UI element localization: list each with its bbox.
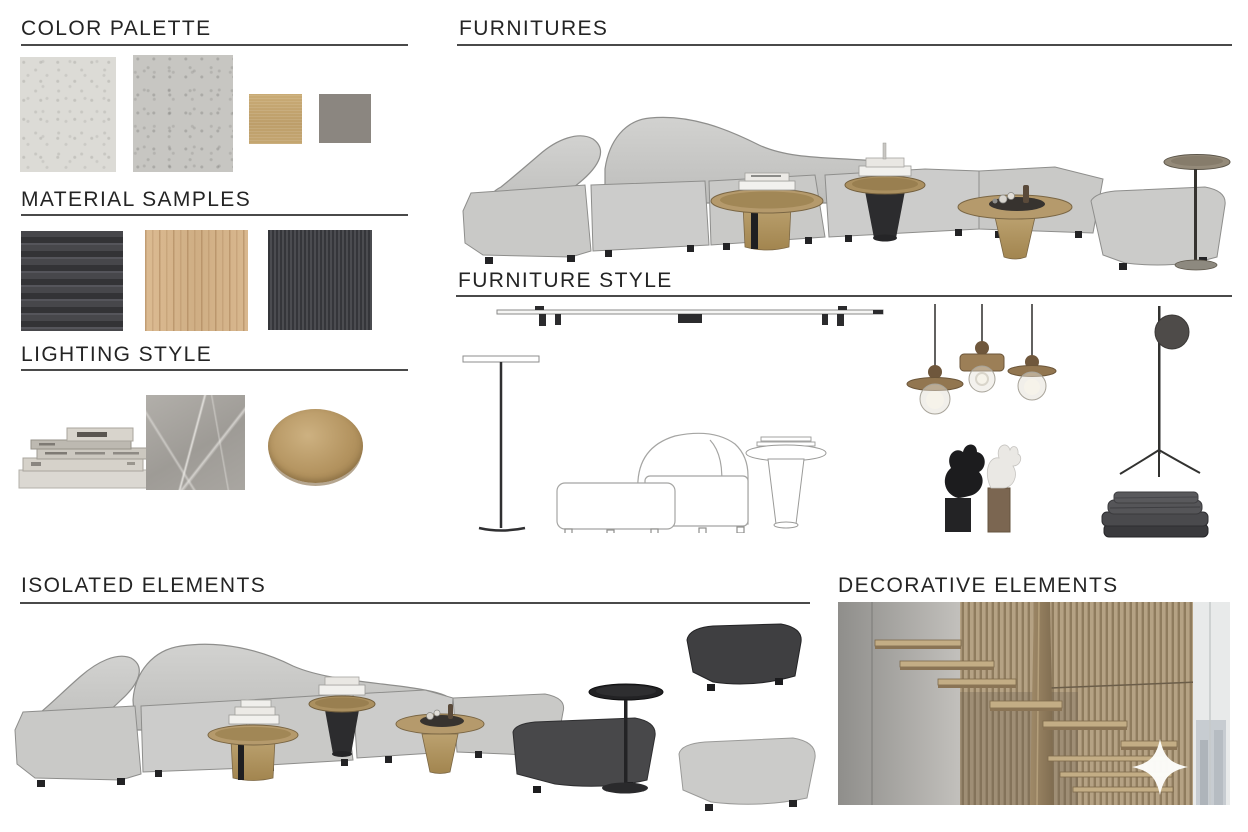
- ribbed-fabric-swatch: [268, 230, 372, 330]
- dark-ottoman: [513, 718, 655, 786]
- mood-board: COLOR PALETTE MATERIAL SAMPLES LIGHTING …: [0, 0, 1248, 832]
- lighting-style-title: LIGHTING STYLE: [21, 343, 212, 367]
- isolated-elements-rule: [20, 602, 810, 604]
- gunmetal-swatch: [319, 94, 371, 143]
- oak-veneer-swatch: [145, 230, 248, 331]
- light-plaster-swatch: [20, 57, 116, 172]
- black-ottoman: [687, 624, 801, 684]
- lighting-style-rule: [21, 369, 408, 371]
- disc-floor-lamp: [1112, 300, 1212, 480]
- abstract-sculptures: [935, 438, 1030, 533]
- material-samples-rule: [21, 214, 408, 216]
- staircase-photo: [838, 602, 1230, 805]
- gray-plaster-swatch: [133, 55, 233, 172]
- floor-lamp-sketch: [463, 356, 539, 531]
- folded-blankets: [1100, 488, 1212, 540]
- color-palette-title: COLOR PALETTE: [21, 17, 212, 41]
- brass-disc: [268, 409, 363, 483]
- modular-chair-sketch: [557, 433, 748, 533]
- book-stack: [15, 422, 155, 492]
- track-light: [495, 303, 885, 329]
- furniture-style-rule: [456, 295, 1232, 297]
- marble-swatch: [146, 395, 245, 490]
- material-samples-title: MATERIAL SAMPLES: [21, 188, 251, 212]
- furnitures-rule: [457, 44, 1232, 46]
- furniture-style-title: FURNITURE STYLE: [458, 269, 673, 293]
- wood-pendant-lights: [903, 300, 1073, 440]
- isolated-elements-title: ISOLATED ELEMENTS: [21, 574, 266, 598]
- decorative-elements-title: DECORATIVE ELEMENTS: [838, 574, 1119, 598]
- furnitures-title: FURNITURES: [459, 17, 608, 41]
- isolated-sofa-group: [5, 612, 825, 812]
- curved-modular-sofa: [455, 105, 1235, 275]
- brushed-brass-swatch: [249, 94, 302, 144]
- furniture-sketches: [455, 348, 835, 533]
- color-palette-rule: [21, 44, 408, 46]
- light-ottoman: [679, 738, 815, 804]
- pedestal-table-sketch: [746, 437, 826, 528]
- striped-fabric-swatch: [21, 231, 123, 331]
